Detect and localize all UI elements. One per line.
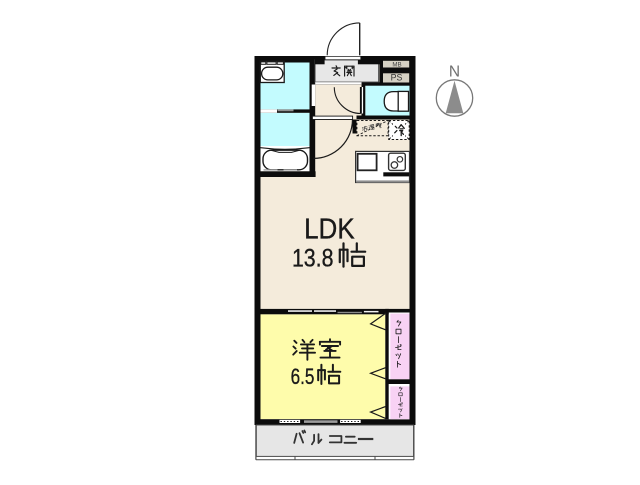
svg-text:6.5: 6.5 [291,364,315,389]
svg-text:PS: PS [391,73,403,83]
svg-text:13.8: 13.8 [292,245,334,273]
svg-text:LDK: LDK [304,214,355,246]
svg-text:N: N [449,64,460,81]
svg-text:MB: MB [392,61,401,68]
